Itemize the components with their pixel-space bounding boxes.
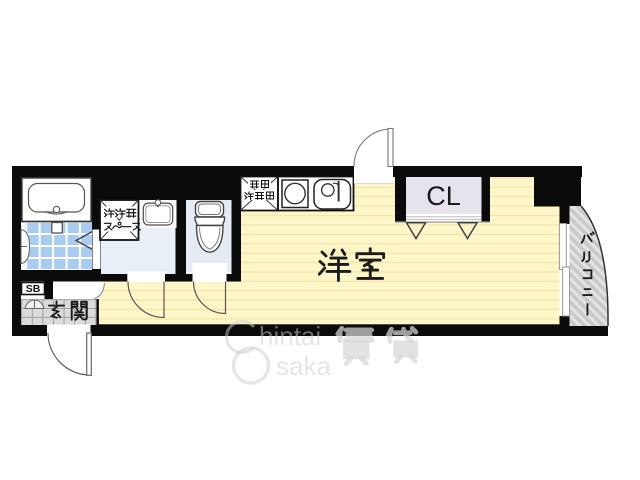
svg-text:hintai: hintai bbox=[259, 321, 321, 351]
svg-text:SB: SB bbox=[26, 283, 41, 295]
svg-text:CL: CL bbox=[426, 181, 461, 211]
svg-text:saka: saka bbox=[276, 351, 331, 381]
